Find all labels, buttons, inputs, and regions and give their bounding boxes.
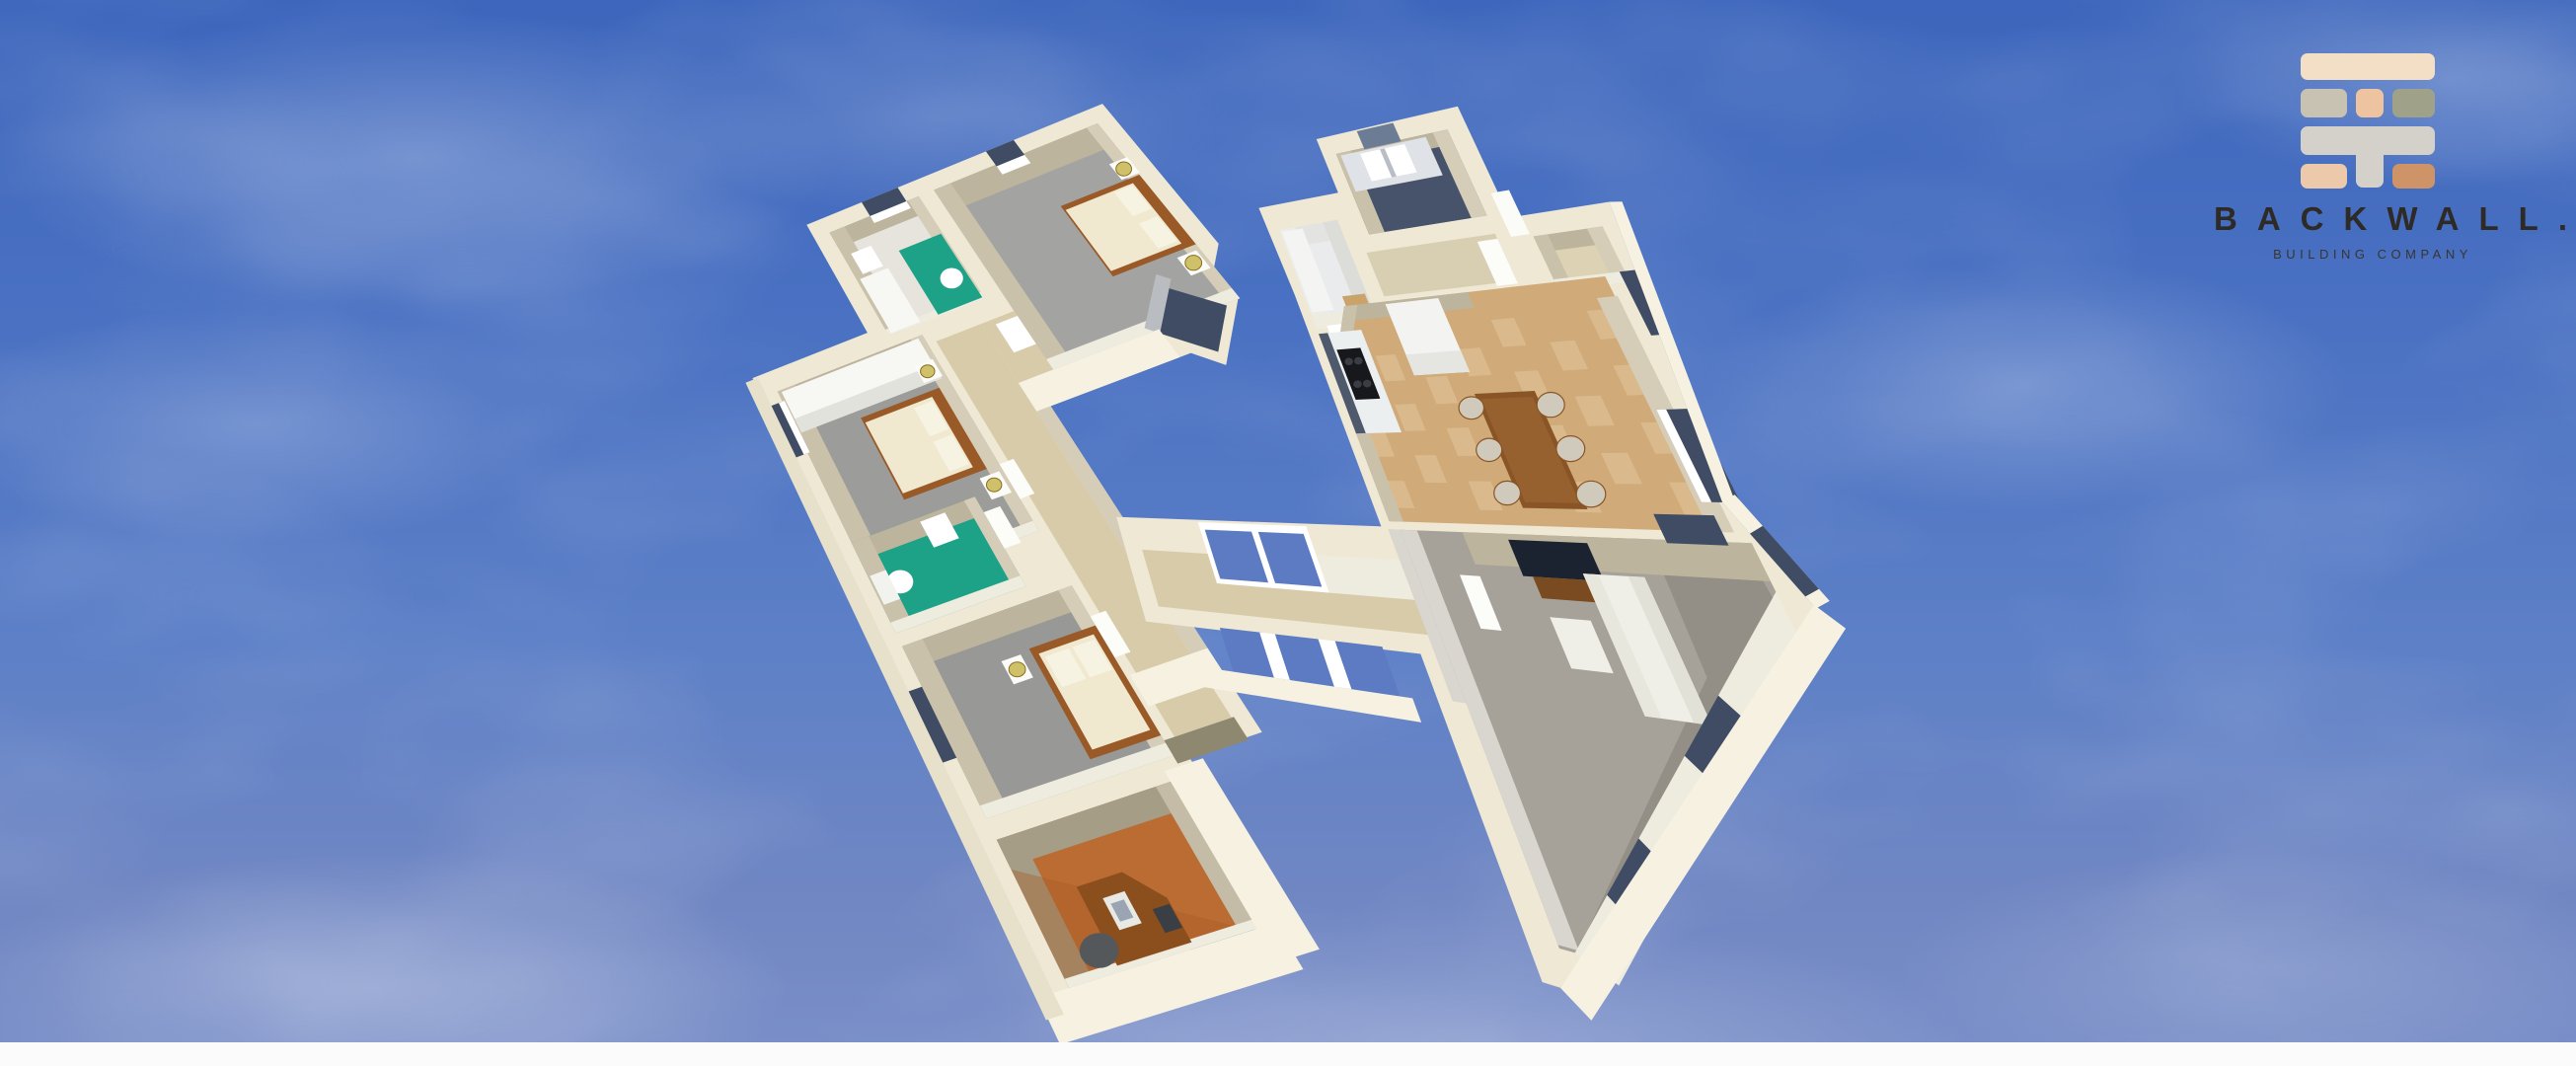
- svg-text:BUILDING COMPANY: BUILDING COMPANY: [2273, 247, 2472, 262]
- svg-text:BACKWALL.: BACKWALL.: [2214, 200, 2576, 237]
